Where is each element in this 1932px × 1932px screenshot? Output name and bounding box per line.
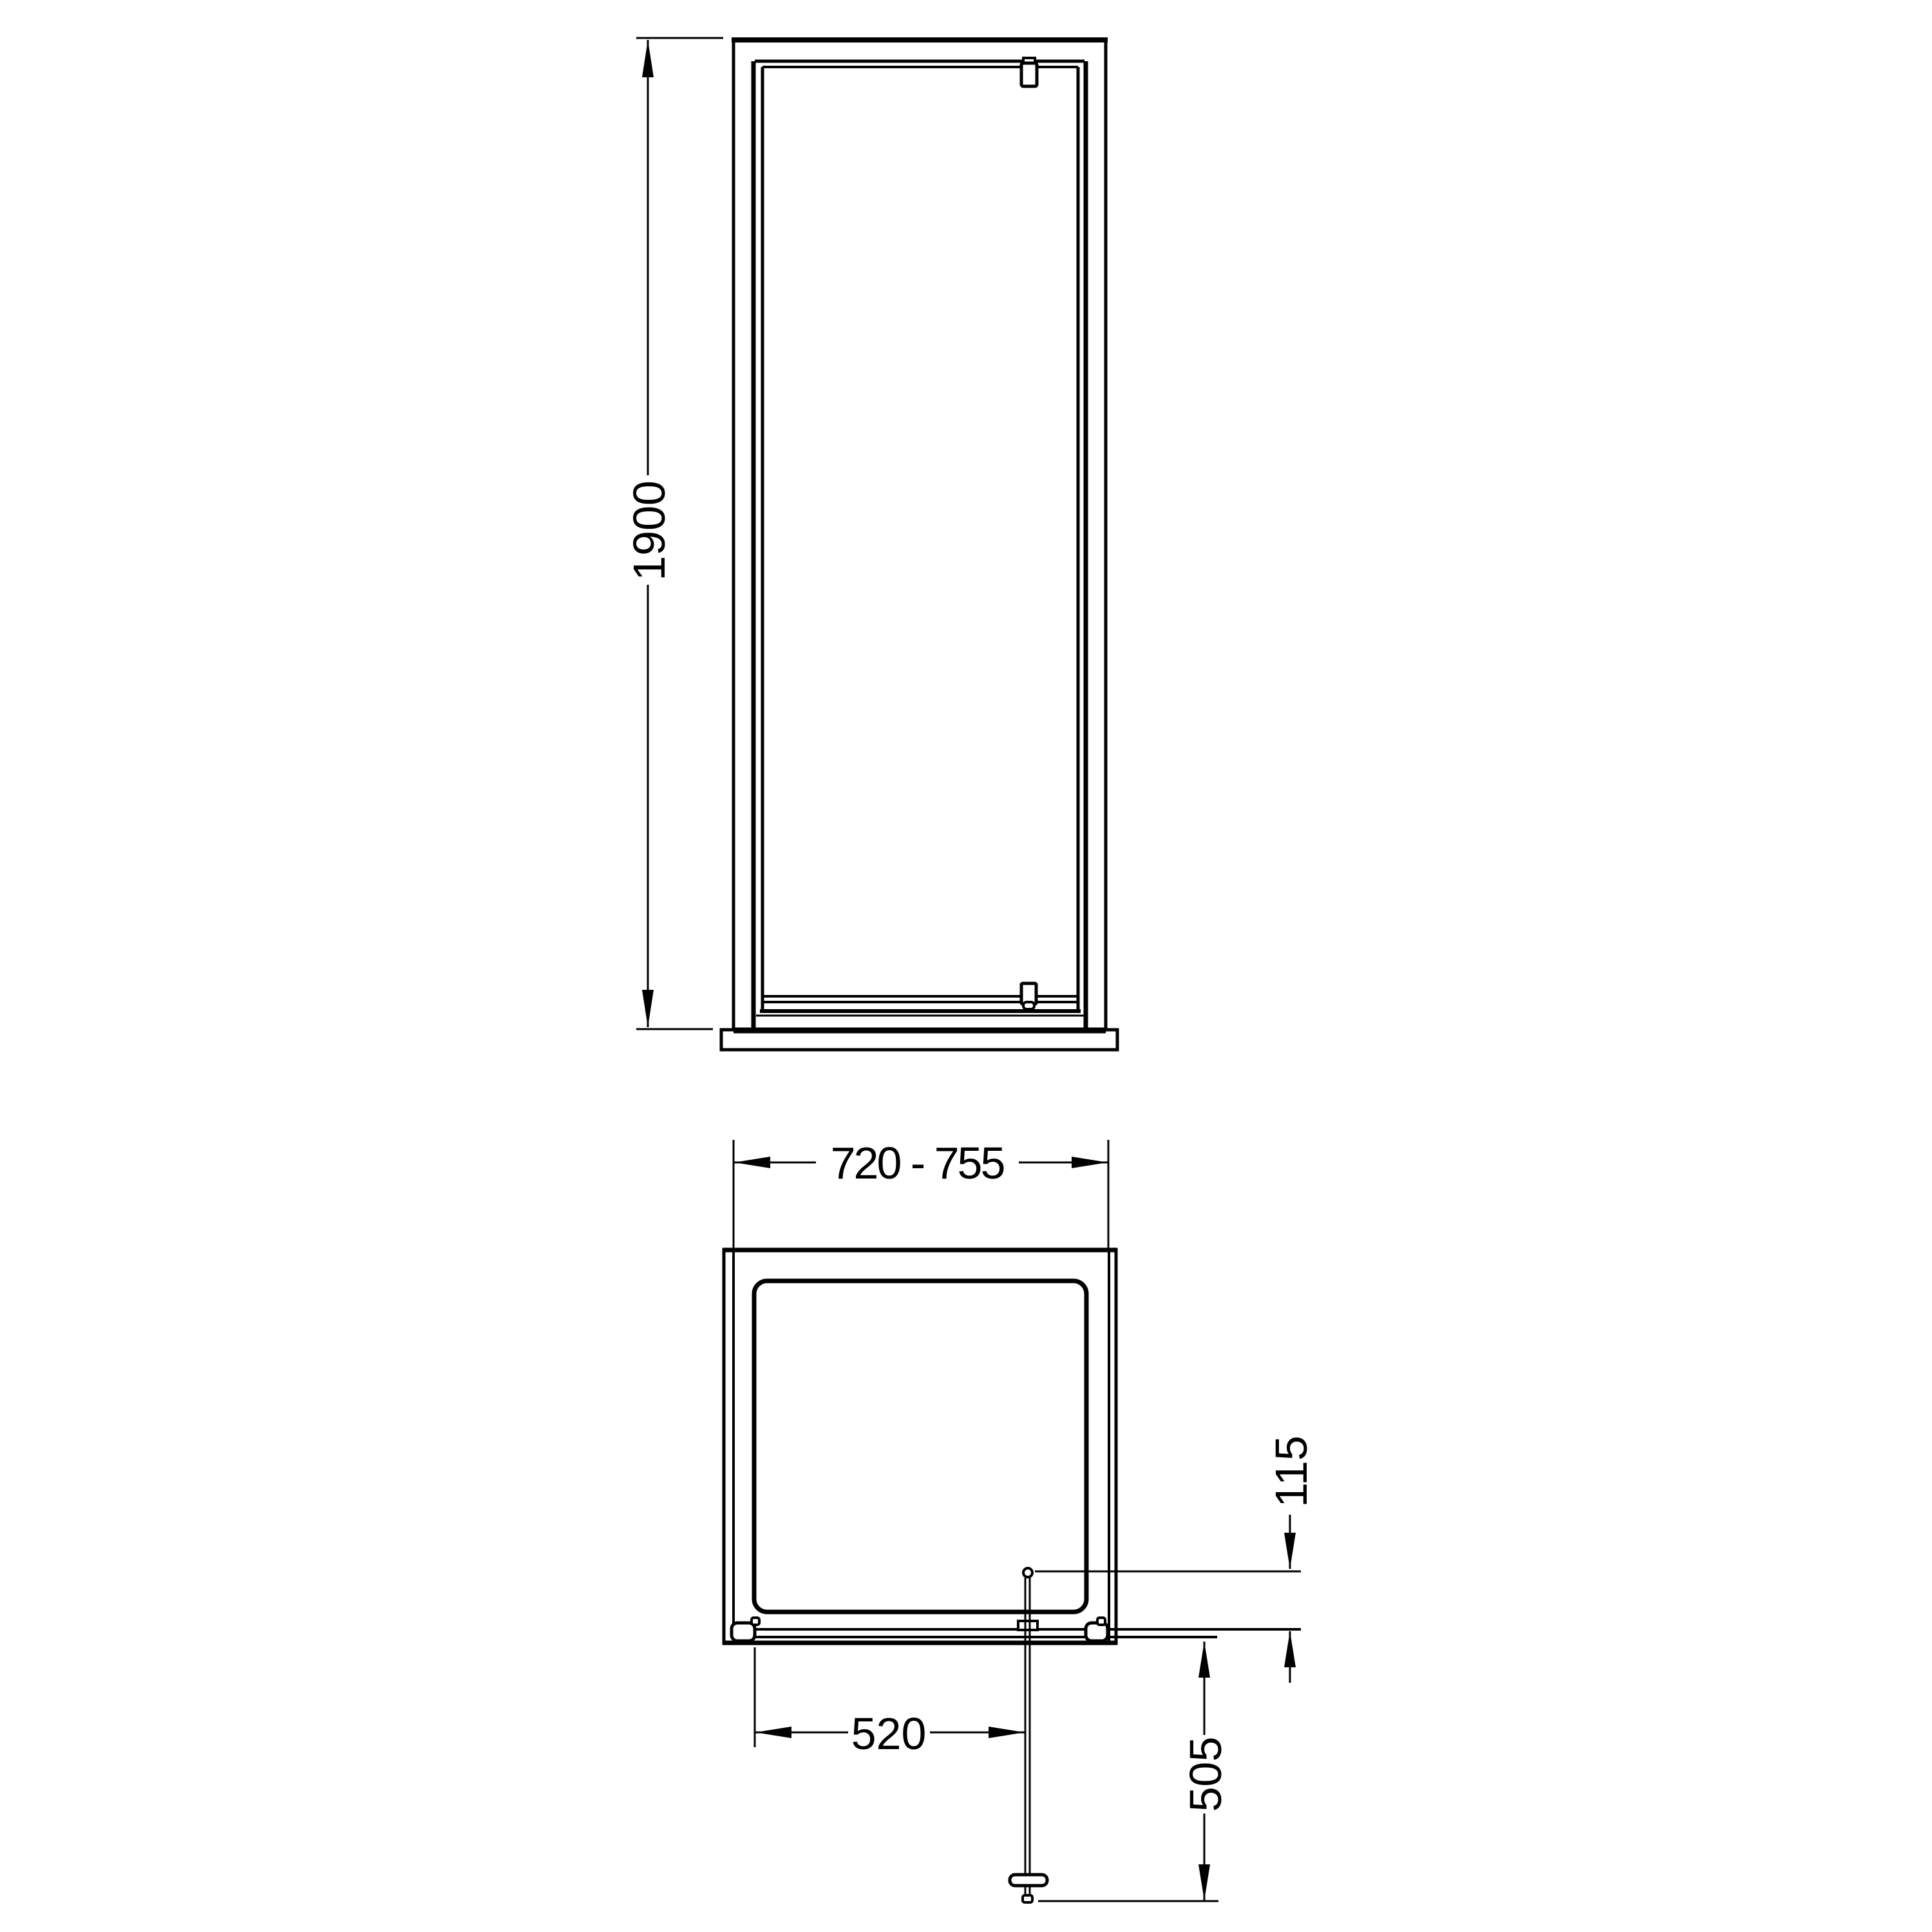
dimension-width-adjustment: 720 - 755: [734, 1138, 1108, 1248]
opening-dim-arrow-left: [755, 1727, 791, 1738]
height-dim-arrow-down: [642, 990, 654, 1027]
left-wall-profile-body: [732, 1623, 755, 1641]
projection-dim-arrow-up: [1198, 1642, 1210, 1678]
open-door-swing: [1010, 1568, 1047, 1902]
tray-slab: [721, 1030, 1117, 1050]
left-wall-profile-knob: [752, 1618, 759, 1625]
height-dim-arrow-up: [642, 40, 654, 77]
width-dim-arrow-right: [1072, 1157, 1108, 1168]
drawing-svg: 1900: [0, 0, 1932, 1932]
top-pivot-block: [1021, 63, 1037, 86]
bottom-pivot-foot: [1023, 1002, 1034, 1009]
inset-dim-arrow-down: [1284, 1533, 1296, 1569]
dimension-front-height: 1900: [624, 38, 723, 1029]
open-door-tip: [1023, 1895, 1032, 1902]
width-dim-label: 720 - 755: [831, 1138, 1004, 1188]
pivot-axis-knob: [1023, 1568, 1032, 1577]
inset-dim-label: 115: [1266, 1435, 1316, 1508]
dimension-door-projection: 505: [1038, 1642, 1231, 1901]
width-dim-arrow-left: [734, 1157, 770, 1168]
open-door-handle: [1010, 1875, 1047, 1886]
top-pivot-hinge: [1021, 58, 1037, 86]
inset-dim-arrow-up: [1284, 1631, 1296, 1667]
right-wall-profile-knob: [1097, 1618, 1105, 1625]
pivot-foot-block: [1018, 1621, 1037, 1630]
dimension-pivot-inset: 115: [1266, 1435, 1316, 1683]
dimension-opening-width: 520: [755, 1647, 1025, 1759]
opening-dim-arrow-right: [989, 1727, 1025, 1738]
height-dim-label: 1900: [624, 480, 674, 581]
projection-dim-label: 505: [1180, 1737, 1231, 1812]
bottom-pivot-hinge: [1021, 983, 1036, 1009]
projection-dim-arrow-down: [1198, 1864, 1210, 1900]
left-wall-profile: [732, 1618, 759, 1641]
technical-drawing-canvas: 1900: [0, 0, 1932, 1932]
plan-tray-outline: [754, 1281, 1086, 1612]
opening-dim-label: 520: [851, 1709, 927, 1759]
front-elevation-view: [721, 38, 1117, 1050]
right-wall-profile: [1086, 1618, 1108, 1641]
